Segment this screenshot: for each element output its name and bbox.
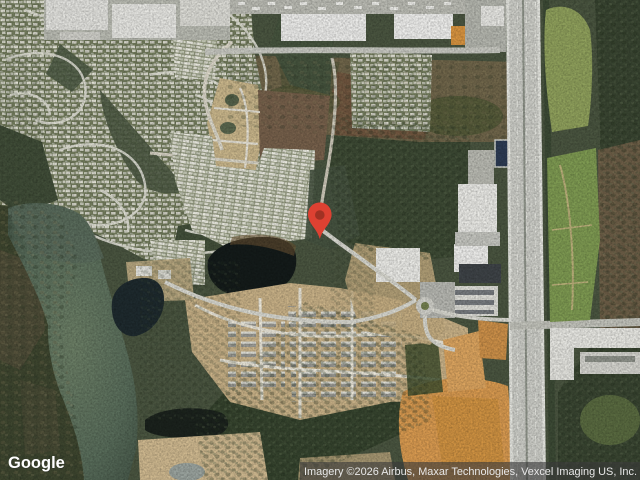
svg-text:Imagery ©2026 Airbus, Maxar Te: Imagery ©2026 Airbus, Maxar Technologies… <box>304 466 637 478</box>
svg-text:Google: Google <box>8 454 65 472</box>
